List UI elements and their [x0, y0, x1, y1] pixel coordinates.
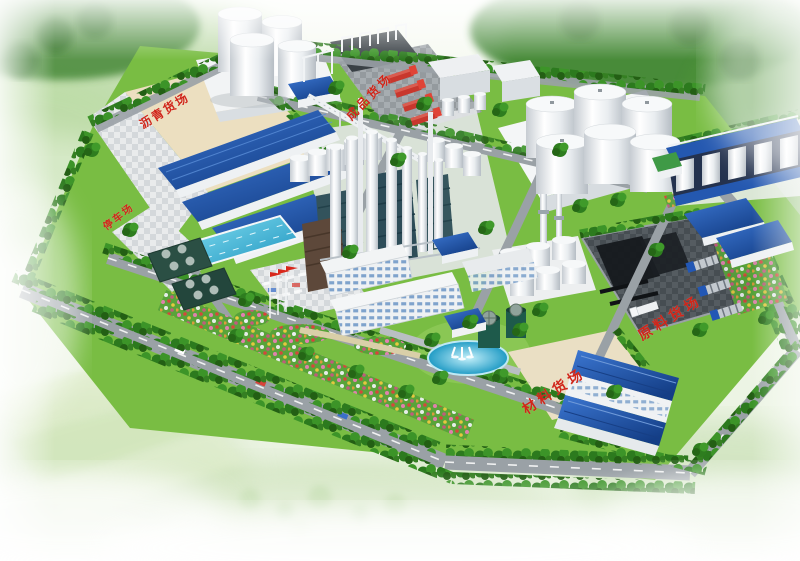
plant-aerial-rendering	[0, 0, 800, 561]
aerial-rendering-canvas: 沥青货场 停车场 成品货场 原料货场 材料货场	[0, 0, 800, 561]
tank-farm-northeast	[526, 84, 680, 194]
